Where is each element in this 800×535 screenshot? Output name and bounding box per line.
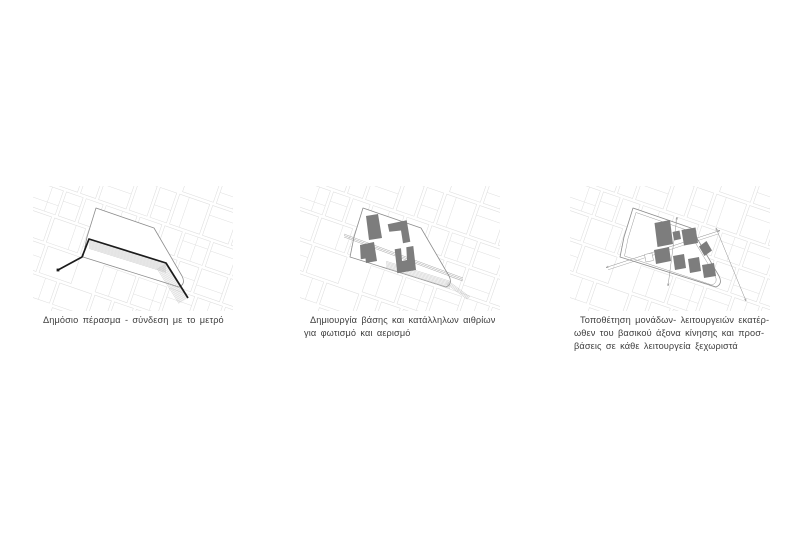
- panel-caption-3: Τοποθέτηση μονάδων- λειτουργειών εκατέρ-…: [570, 314, 770, 353]
- public-passage-overlay: [57, 239, 188, 304]
- panel-caption-2: Δημιουργία βάσης και κατάλληλων αιθρίων …: [300, 314, 500, 340]
- process-panel-2: Δημιουργία βάσης και κατάλληλων αιθρίων …: [300, 186, 500, 340]
- site-map-step-2: [300, 186, 500, 311]
- architecture-process-figure: Δημόσιο πέρασμα - σύνδεση με το μετρό Δη…: [0, 0, 800, 535]
- units-axis-overlay: [606, 213, 746, 302]
- site-map-step-1: [33, 186, 233, 311]
- metro-station-dot: [57, 269, 60, 272]
- site-map-step-3: [570, 186, 770, 311]
- process-panel-3: Τοποθέτηση μονάδων- λειτουργειών εκατέρ-…: [570, 186, 770, 353]
- panel-caption-1: Δημόσιο πέρασμα - σύνδεση με το μετρό: [33, 314, 233, 327]
- open-block-outline: [645, 253, 654, 262]
- process-panel-1: Δημόσιο πέρασμα - σύνδεση με το μετρό: [33, 186, 233, 327]
